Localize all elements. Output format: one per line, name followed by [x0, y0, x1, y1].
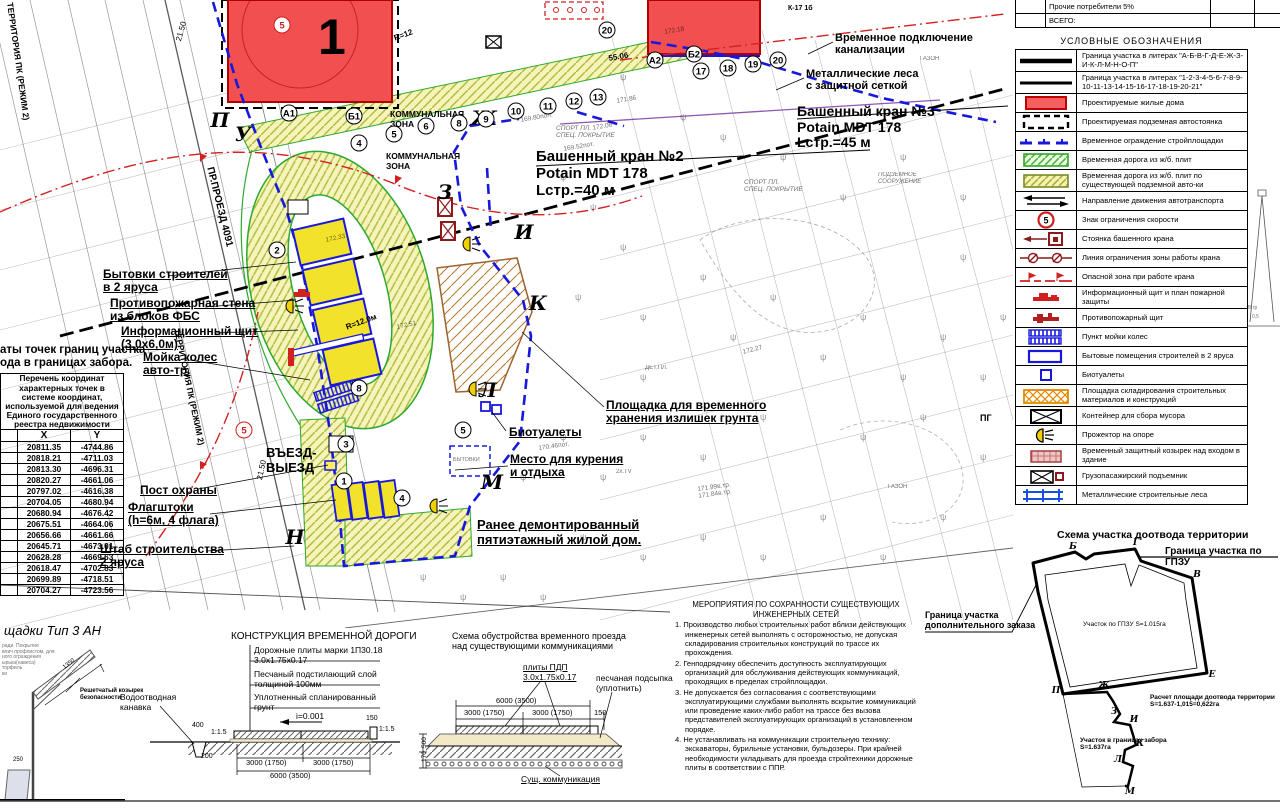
legend-row-19: Прожектор на опоре	[1016, 425, 1247, 444]
coord-cell: -4673.01	[71, 541, 124, 552]
legend-row-22: Металлические строительные леса	[1016, 485, 1247, 504]
svg-text:ψ: ψ	[620, 242, 626, 252]
legend-row-10: Линия ограничения зоны работы крана	[1016, 248, 1247, 267]
crossing-section-drawing	[419, 682, 622, 776]
legend-row-5: Временная дорога из ж/б. плит	[1016, 150, 1247, 169]
consumers-row-1: ВСЕГО:	[1015, 13, 1280, 27]
coord-cell	[1, 585, 18, 596]
legend-table: Граница участка в литерах "А-Б-В-Г-Д-Е-Ж…	[1015, 49, 1248, 505]
legend-label: Бытовые помещения строителей в 2 яруса	[1077, 350, 1236, 363]
legend-row-3: Проектируемая подземная автостоянка	[1016, 112, 1247, 131]
fence-detail-drawing	[0, 650, 125, 800]
legend-row-0: Граница участка в литерах "А-Б-В-Г-Д-Е-Ж…	[1016, 50, 1247, 71]
hoist-icon	[1016, 467, 1077, 485]
consumers-row-label: Прочие потребители 5%	[1045, 0, 1210, 13]
coord-cell: -4696.31	[71, 464, 124, 475]
svg-text:ψ: ψ	[880, 552, 886, 562]
consumers-cell	[1254, 0, 1280, 13]
legend-label: Грузопасажирский подъемник	[1077, 470, 1189, 483]
svg-text:ψ: ψ	[900, 372, 906, 382]
legend-row-16: Биотуалеты	[1016, 365, 1247, 384]
coord-row: 20704.27-4723.56	[1, 585, 124, 596]
building-1-number: 1	[318, 9, 346, 65]
coord-table-note: Перечень координат характерных точек в с…	[1, 374, 124, 430]
legend-title: УСЛОВНЫЕ ОБОЗНАЧЕНИЯ	[1015, 36, 1248, 46]
legend-label: Граница участка в литерах "А-Б-В-Г-Д-Е-Ж…	[1077, 50, 1247, 71]
redrect-icon	[1016, 94, 1077, 112]
legend-row-21: Грузопасажирский подъемник	[1016, 466, 1247, 485]
consumers-cell	[1210, 14, 1254, 27]
dootvod-diagram	[925, 549, 1278, 787]
legend-row-4: Временное ограждение стройплощадки	[1016, 131, 1247, 150]
coord-cell: 20818.21	[18, 453, 71, 464]
coord-cell: -4664.06	[71, 519, 124, 530]
wheelwash-icon	[1016, 328, 1077, 346]
svg-text:ψ: ψ	[980, 372, 986, 382]
svg-text:ψ: ψ	[860, 432, 866, 442]
consumers-row-label: ВСЕГО:	[1045, 14, 1210, 27]
legend-row-2: Проектируемые жилые дома	[1016, 93, 1247, 112]
speed-icon: 5	[1016, 211, 1077, 229]
coord-cell: 20797.02	[18, 486, 71, 497]
legend-row-1: Граница участка в литерах "1-2-3-4-5-6-7…	[1016, 71, 1247, 93]
svg-text:ψ: ψ	[1000, 312, 1006, 322]
building-2	[648, 0, 760, 54]
legend-label: Прожектор на опоре	[1077, 429, 1156, 442]
stroygenplan-sheet: ψψψψψψψψψψψψψψψψψψψψψψψψψψψψψψψψψψψψψψψψ…	[0, 0, 1280, 809]
legend-row-9: Стоянка башенного крана	[1016, 229, 1247, 248]
yellowhatch-icon	[1016, 170, 1077, 191]
svg-text:ψ: ψ	[580, 532, 586, 542]
legend-label: Опасной зона при работе крана	[1077, 271, 1196, 284]
svg-text:ψ: ψ	[760, 412, 766, 422]
legend-label: Информационный щит и план пожарной защит…	[1077, 287, 1247, 308]
road-section-drawing	[150, 645, 400, 775]
svg-text:ψ: ψ	[640, 552, 646, 562]
legend-row-14: Пункт мойки колес	[1016, 327, 1247, 346]
notes-block: МЕРОПРИЯТИЯ ПО СОХРАННОСТИ СУЩЕСТВУЮЩИХ …	[675, 600, 917, 773]
svg-text:ψ: ψ	[960, 252, 966, 262]
legend-label: Временный защитный козырек над входом в …	[1077, 445, 1247, 466]
coord-cell	[1, 442, 18, 453]
coord-row: 20645.71-4673.01	[1, 541, 124, 552]
svg-text:ψ: ψ	[820, 352, 826, 362]
cranestand-icon	[1016, 230, 1077, 248]
coord-row: 20811.35-4744.86	[1, 442, 124, 453]
svg-text:ψ: ψ	[420, 572, 426, 582]
legend-label: Направление движения автотранспорта	[1077, 195, 1226, 208]
legend-label: Противопожарный щит	[1077, 312, 1165, 325]
note-item-4: 4. Не устанавливать на коммуникации стро…	[675, 735, 917, 772]
coord-cell: 20656.66	[18, 530, 71, 541]
orangehatch-icon	[1016, 385, 1077, 406]
legend-label: Временная дорога из ж/б. плит по существ…	[1077, 170, 1247, 191]
coordinates-table: Перечень координат характерных точек в с…	[0, 373, 124, 596]
consumers-cell	[1254, 14, 1280, 27]
coord-row: 20813.30-4696.31	[1, 464, 124, 475]
coord-cell: 20699.89	[18, 574, 71, 585]
coord-cell: 20704.05	[18, 497, 71, 508]
right-edge-detail	[1248, 190, 1280, 326]
svg-text:ψ: ψ	[760, 552, 766, 562]
legend-label: Проектируемая подземная автостоянка	[1077, 116, 1224, 129]
legend-label: Временная дорога из ж/б. плит	[1077, 154, 1194, 167]
coord-cell: 20675.51	[18, 519, 71, 530]
gate	[288, 200, 308, 214]
svg-text:ψ: ψ	[940, 332, 946, 342]
svg-text:ψ: ψ	[770, 292, 776, 302]
coord-cell	[1, 530, 18, 541]
greenhatch-icon	[1016, 151, 1077, 169]
coord-row: 20699.89-4718.51	[1, 574, 124, 585]
legend-label: Стоянка башенного крана	[1077, 233, 1176, 246]
svg-text:ψ: ψ	[700, 532, 706, 542]
svg-text:ψ: ψ	[980, 452, 986, 462]
consumers-cell	[1210, 0, 1254, 13]
coord-cell: 20645.71	[18, 541, 71, 552]
info-board-symbol	[294, 292, 310, 297]
coord-cell: -4669.63	[71, 552, 124, 563]
legend-label: Линия ограничения зоны работы крана	[1077, 252, 1222, 265]
svg-text:ψ: ψ	[640, 432, 646, 442]
floodlight-icon	[1016, 426, 1077, 444]
coord-col-header	[1, 430, 18, 442]
dangerline-icon	[1016, 268, 1077, 286]
coord-cell: -4661.06	[71, 475, 124, 486]
svg-text:ψ: ψ	[820, 512, 826, 522]
legend-label: Биотуалеты	[1077, 369, 1126, 382]
svg-text:ψ: ψ	[620, 72, 626, 82]
scaffold-icon	[1016, 486, 1077, 504]
legend-label: Временное ограждение стройплощадки	[1077, 135, 1225, 148]
biotoilet-symbol	[492, 405, 501, 414]
legend-row-17: Площадка складирования строительных мате…	[1016, 384, 1247, 406]
coord-cell	[1, 552, 18, 563]
coord-row: 20618.47-4702.83	[1, 563, 124, 574]
biotoilet-symbol	[481, 402, 490, 411]
legend-row-18: Контейнер для сбора мусора	[1016, 406, 1247, 425]
coord-cell	[1, 508, 18, 519]
coord-cell: -4616.38	[71, 486, 124, 497]
legend: УСЛОВНЫЕ ОБОЗНАЧЕНИЯ Граница участка в л…	[1015, 36, 1248, 505]
coord-cell: -4723.56	[71, 585, 124, 596]
legend-label: Проектируемые жилые дома	[1077, 97, 1186, 110]
coord-cell	[1, 563, 18, 574]
svg-text:ψ: ψ	[780, 152, 786, 162]
floodlight-icon	[463, 237, 481, 251]
coord-cell	[1, 453, 18, 464]
svg-text:ψ: ψ	[590, 202, 596, 212]
svg-text:ψ: ψ	[600, 472, 606, 482]
coord-cell: 20704.27	[18, 585, 71, 596]
coord-cell: -4676.42	[71, 508, 124, 519]
svg-text:ψ: ψ	[640, 372, 646, 382]
note-item-2: 2. Генподрядчику обеспечить доступность …	[675, 659, 917, 687]
coord-cell: -4680.94	[71, 497, 124, 508]
svg-text:ψ: ψ	[700, 272, 706, 282]
dashrect-icon	[1016, 113, 1077, 131]
coord-cell	[1, 497, 18, 508]
canopy-icon	[1016, 445, 1077, 466]
svg-text:ψ: ψ	[560, 432, 566, 442]
legend-label: Металлические строительные леса	[1077, 489, 1209, 502]
svg-text:ψ: ψ	[560, 172, 566, 182]
consumers-row-0: Прочие потребители 5%	[1015, 0, 1280, 13]
coord-row: 20628.28-4669.63	[1, 552, 124, 563]
svg-text:ψ: ψ	[540, 592, 546, 602]
legend-label: Пункт мойки колес	[1077, 331, 1150, 344]
future-bytovki-outline	[450, 446, 490, 476]
legend-row-20: Временный защитный козырек над входом в …	[1016, 444, 1247, 466]
svg-text:ψ: ψ	[500, 572, 506, 582]
svg-text:ψ: ψ	[640, 312, 646, 322]
fireshield-icon	[1016, 309, 1077, 327]
coord-row: 20704.05-4680.94	[1, 497, 124, 508]
coord-cell	[1, 475, 18, 486]
coord-cell: 20811.35	[18, 442, 71, 453]
svg-text:ψ: ψ	[920, 412, 926, 422]
coordinates-title: аты точек границ участка ода в границах …	[0, 344, 175, 370]
legend-row-6: Временная дорога из ж/б. плит по существ…	[1016, 169, 1247, 191]
svg-text:ψ: ψ	[840, 192, 846, 202]
legend-label: Знак ограничения скорости	[1077, 214, 1181, 227]
notes-title: МЕРОПРИЯТИЯ ПО СОХРАННОСТИ СУЩЕСТВУЮЩИХ …	[675, 600, 917, 619]
coord-cell: -4718.51	[71, 574, 124, 585]
line1-icon	[1016, 50, 1077, 71]
svg-text:ψ: ψ	[460, 592, 466, 602]
note-item-3: 3. Не допускается без согласования с соо…	[675, 688, 917, 734]
note-item-1: 1. Производство любых строительных работ…	[675, 620, 917, 657]
bluedash-icon	[1016, 132, 1077, 150]
legend-row-15: Бытовые помещения строителей в 2 яруса	[1016, 346, 1247, 365]
legend-row-8: 5Знак ограничения скорости	[1016, 210, 1247, 229]
coord-cell: -4661.66	[71, 530, 124, 541]
coord-cell	[1, 486, 18, 497]
coord-row: 20680.94-4676.42	[1, 508, 124, 519]
legend-row-7: Направление движения автотранспорта	[1016, 191, 1247, 210]
coord-col-header: X	[18, 430, 71, 442]
svg-text:ψ: ψ	[900, 152, 906, 162]
coord-cell	[1, 519, 18, 530]
coord-row: 20797.02-4616.38	[1, 486, 124, 497]
coord-cell	[1, 574, 18, 585]
consumers-cell	[1015, 0, 1045, 13]
legend-row-11: Опасной зона при работе крана	[1016, 267, 1247, 286]
svg-text:ψ: ψ	[730, 332, 736, 342]
zoneline-icon	[1016, 249, 1077, 267]
legend-row-13: Противопожарный щит	[1016, 308, 1247, 327]
arrows-icon	[1016, 192, 1077, 210]
consumers-table: Прочие потребители 5%ВСЕГО:	[1015, 0, 1280, 28]
svg-text:ψ: ψ	[940, 512, 946, 522]
coord-cell: -4702.83	[71, 563, 124, 574]
site-boundary-line	[60, 88, 1008, 336]
coord-cell	[1, 541, 18, 552]
coord-cell: -4744.86	[71, 442, 124, 453]
container-icon	[1016, 407, 1077, 425]
svg-text:5: 5	[1043, 216, 1048, 226]
svg-text:ψ: ψ	[960, 192, 966, 202]
coord-cell: 20618.47	[18, 563, 71, 574]
legend-row-12: Информационный щит и план пожарной защит…	[1016, 286, 1247, 308]
consumers-cell	[1015, 14, 1045, 27]
legend-label: Контейнер для сбора мусора	[1077, 410, 1187, 423]
notes-items: 1. Производство любых строительных работ…	[675, 620, 917, 772]
coord-row: 20675.51-4664.06	[1, 519, 124, 530]
svg-text:ψ: ψ	[520, 472, 526, 482]
coord-cell	[1, 464, 18, 475]
coord-cell: 20820.27	[18, 475, 71, 486]
line2-icon	[1016, 72, 1077, 93]
fire-shield-symbol	[288, 348, 294, 366]
svg-text:ψ: ψ	[575, 292, 581, 302]
svg-text:ψ: ψ	[700, 452, 706, 462]
coord-cell: -4711.03	[71, 453, 124, 464]
coord-cell: 20680.94	[18, 508, 71, 519]
coord-cell: 20628.28	[18, 552, 71, 563]
coord-cell: 20813.30	[18, 464, 71, 475]
infoboard-icon	[1016, 287, 1077, 308]
svg-text:ψ: ψ	[860, 312, 866, 322]
legend-label: Площадка складирования строительных мате…	[1077, 385, 1247, 406]
coord-row: 20656.66-4661.66	[1, 530, 124, 541]
legend-label: Граница участка в литерах "1-2-3-4-5-6-7…	[1077, 72, 1247, 93]
bluesquare-icon	[1016, 366, 1077, 384]
coord-row: 20820.27-4661.06	[1, 475, 124, 486]
soil-storage-area	[437, 258, 532, 392]
bluerect-icon	[1016, 347, 1077, 365]
coordinates-block: аты точек границ участка ода в границах …	[0, 344, 175, 596]
coord-row: 20818.21-4711.03	[1, 453, 124, 464]
coord-col-header: Y	[71, 430, 124, 442]
svg-text:ψ: ψ	[720, 132, 726, 142]
